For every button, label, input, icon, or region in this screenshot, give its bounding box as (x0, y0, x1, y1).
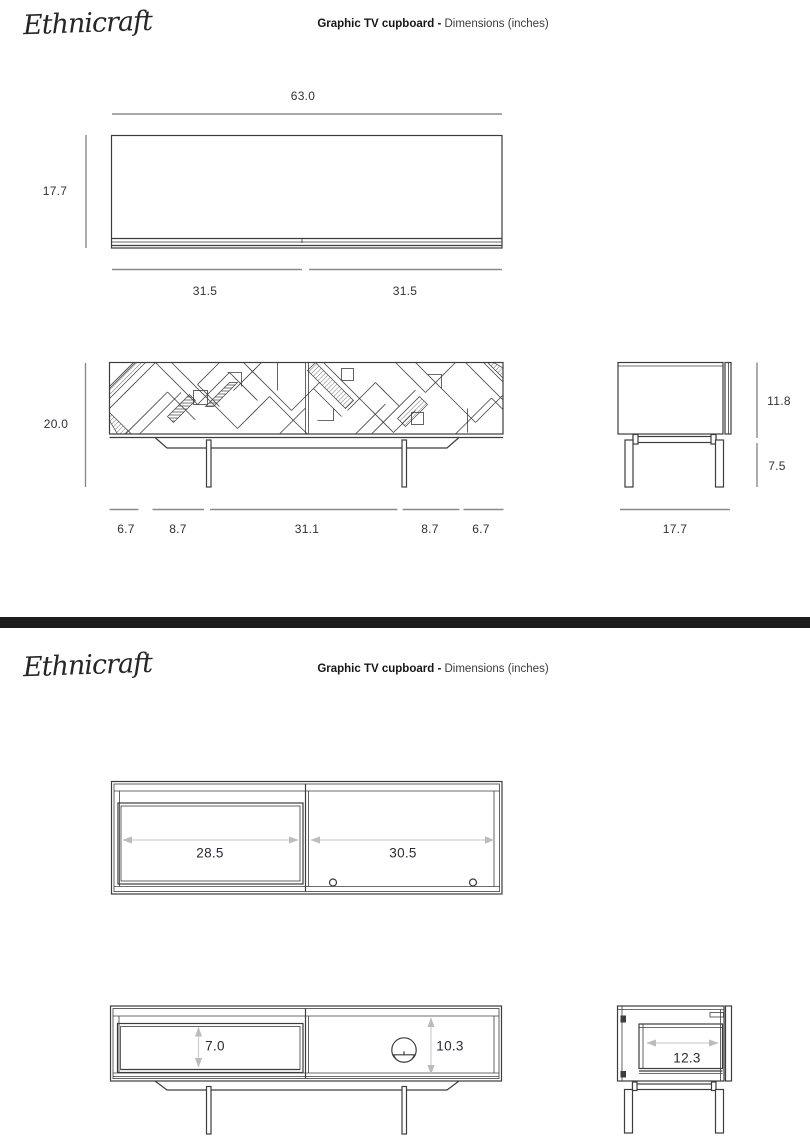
open-side-view-lines (618, 1006, 732, 1133)
dim-drawer-opening-height: 7.0 (205, 1039, 225, 1054)
dim-left-opening-width: 28.5 (196, 846, 223, 861)
dim-inner-depth: 12.3 (673, 1051, 700, 1066)
page-divider (0, 617, 810, 628)
top-view-lines (86, 114, 502, 270)
page-title: Graphic TV cupboard - Dimensions (inches… (0, 663, 810, 675)
marquetry-pattern (110, 363, 504, 435)
page-title: Graphic TV cupboard - Dimensions (inches… (0, 18, 810, 30)
side-view-lines (618, 363, 757, 510)
technical-line-art (0, 0, 810, 1148)
dim-leg-span: 31.1 (295, 522, 320, 536)
open-front-legs-lines (111, 1006, 502, 1134)
open-front-view-lines (112, 782, 503, 895)
dim-niche-height: 10.3 (436, 1039, 463, 1054)
dim-door-right-width: 31.5 (393, 284, 418, 298)
dim-door-left-width: 31.5 (193, 284, 218, 298)
dim-right-overhang: 6.7 (472, 522, 490, 536)
product-name: Graphic TV cupboard - (317, 663, 441, 675)
dim-top-depth: 17.7 (43, 184, 68, 198)
dim-right-opening-width: 30.5 (389, 846, 416, 861)
product-name: Graphic TV cupboard - (317, 18, 441, 30)
dim-right-leg-inset: 8.7 (421, 522, 439, 536)
dim-left-overhang: 6.7 (117, 522, 135, 536)
front-view-lines (86, 363, 504, 510)
dim-side-depth: 17.7 (663, 522, 688, 536)
spec-sheet-canvas: Ethnicraft Graphic TV cupboard - Dimensi… (0, 0, 810, 1148)
dim-top-overall-width: 63.0 (291, 89, 316, 103)
dim-left-leg-inset: 8.7 (169, 522, 187, 536)
title-subtitle: Dimensions (inches) (444, 18, 548, 30)
dim-leg-height: 7.5 (768, 459, 786, 473)
dim-body-height: 11.8 (767, 394, 791, 408)
dim-front-height: 20.0 (44, 417, 69, 431)
title-subtitle: Dimensions (inches) (444, 663, 548, 675)
